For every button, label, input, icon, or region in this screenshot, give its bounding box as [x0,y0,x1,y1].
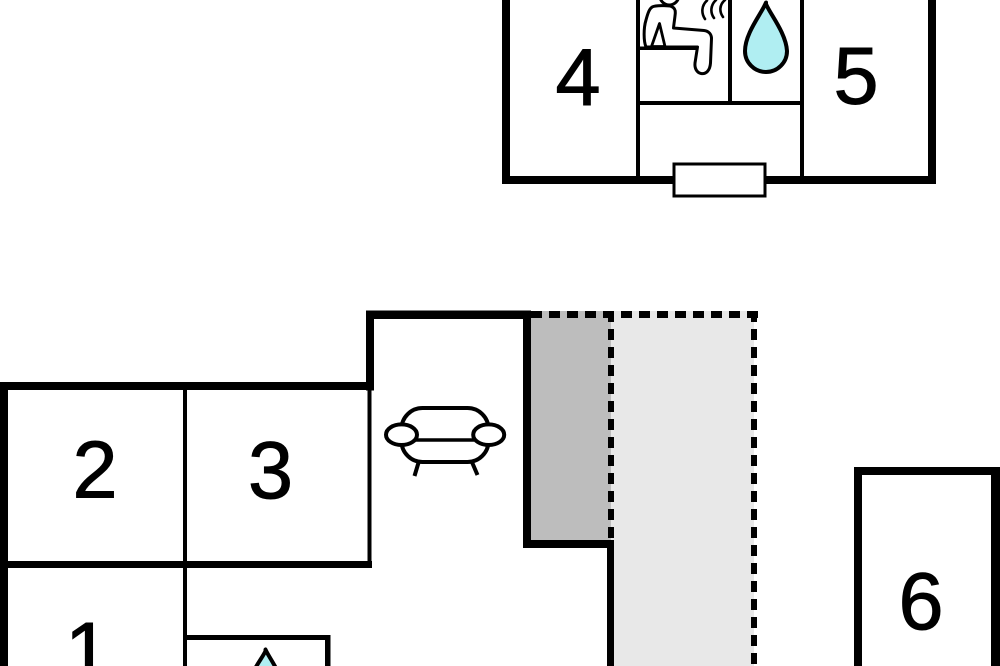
svg-text:3: 3 [248,426,293,516]
svg-text:1: 1 [65,607,110,666]
svg-text:6: 6 [898,557,943,647]
svg-text:2: 2 [72,426,117,516]
svg-text:5: 5 [833,32,878,122]
svg-text:4: 4 [555,33,600,123]
